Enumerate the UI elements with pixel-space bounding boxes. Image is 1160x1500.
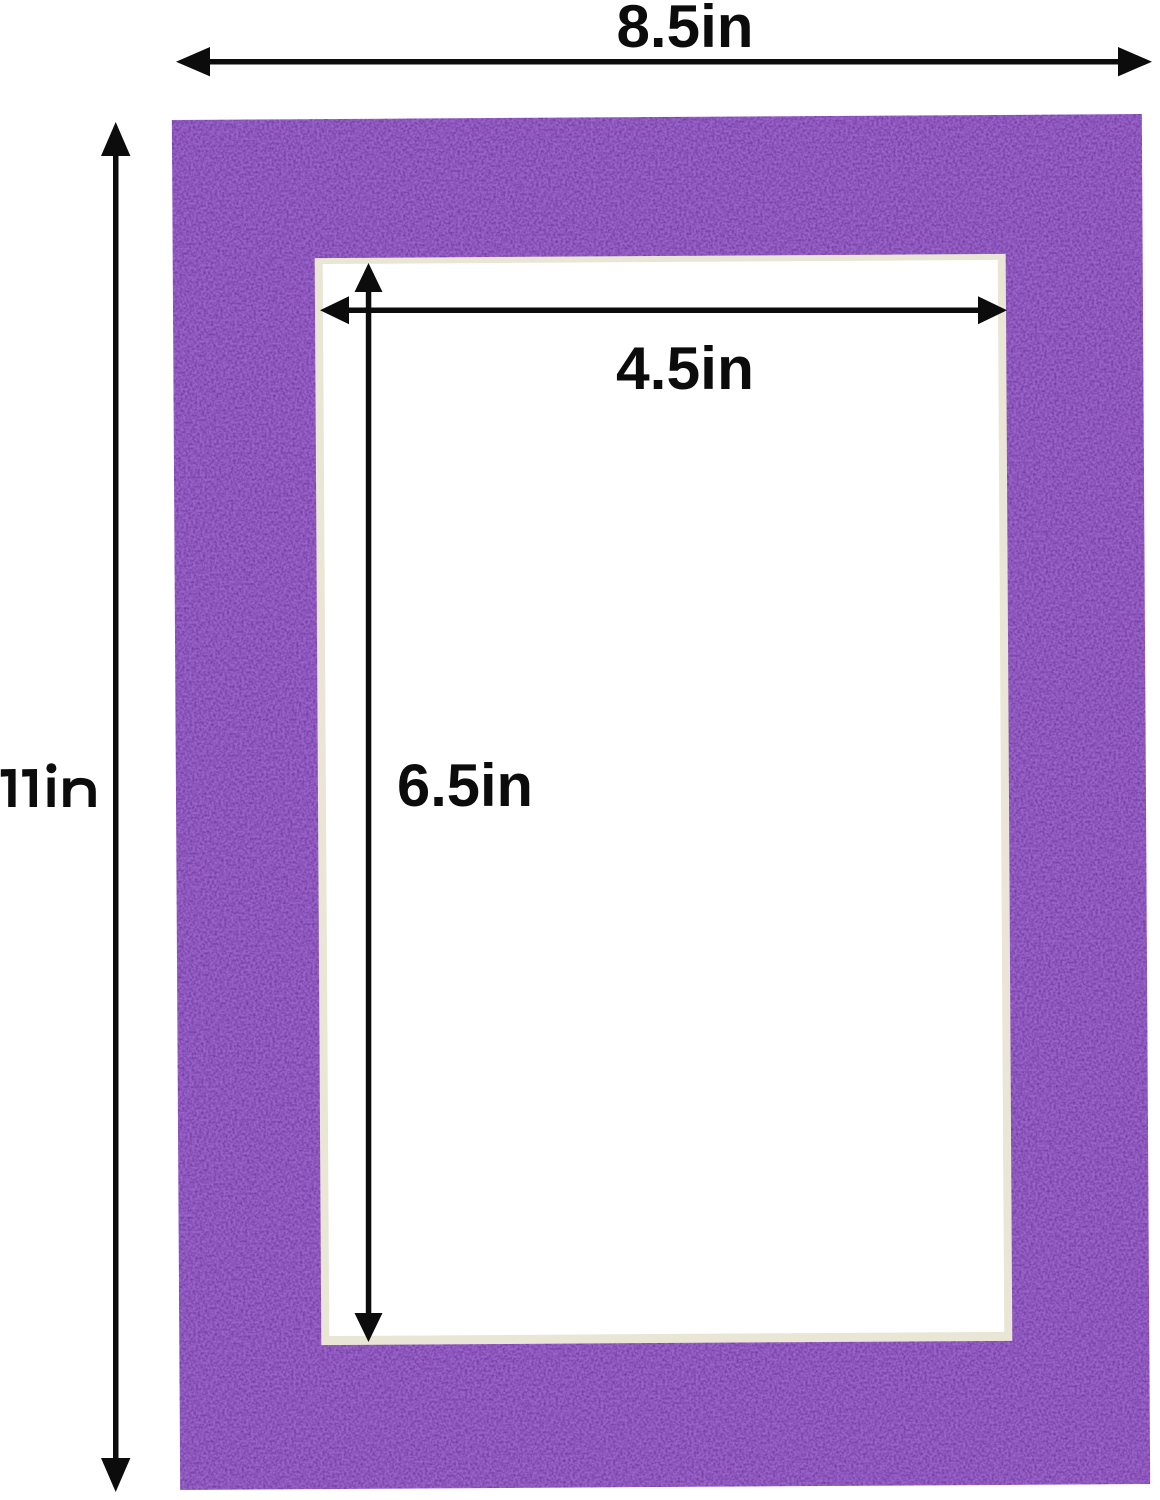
svg-text:6.5in: 6.5in — [397, 752, 533, 819]
svg-text:4.5in: 4.5in — [616, 335, 754, 402]
svg-text:8.5in: 8.5in — [617, 0, 754, 60]
